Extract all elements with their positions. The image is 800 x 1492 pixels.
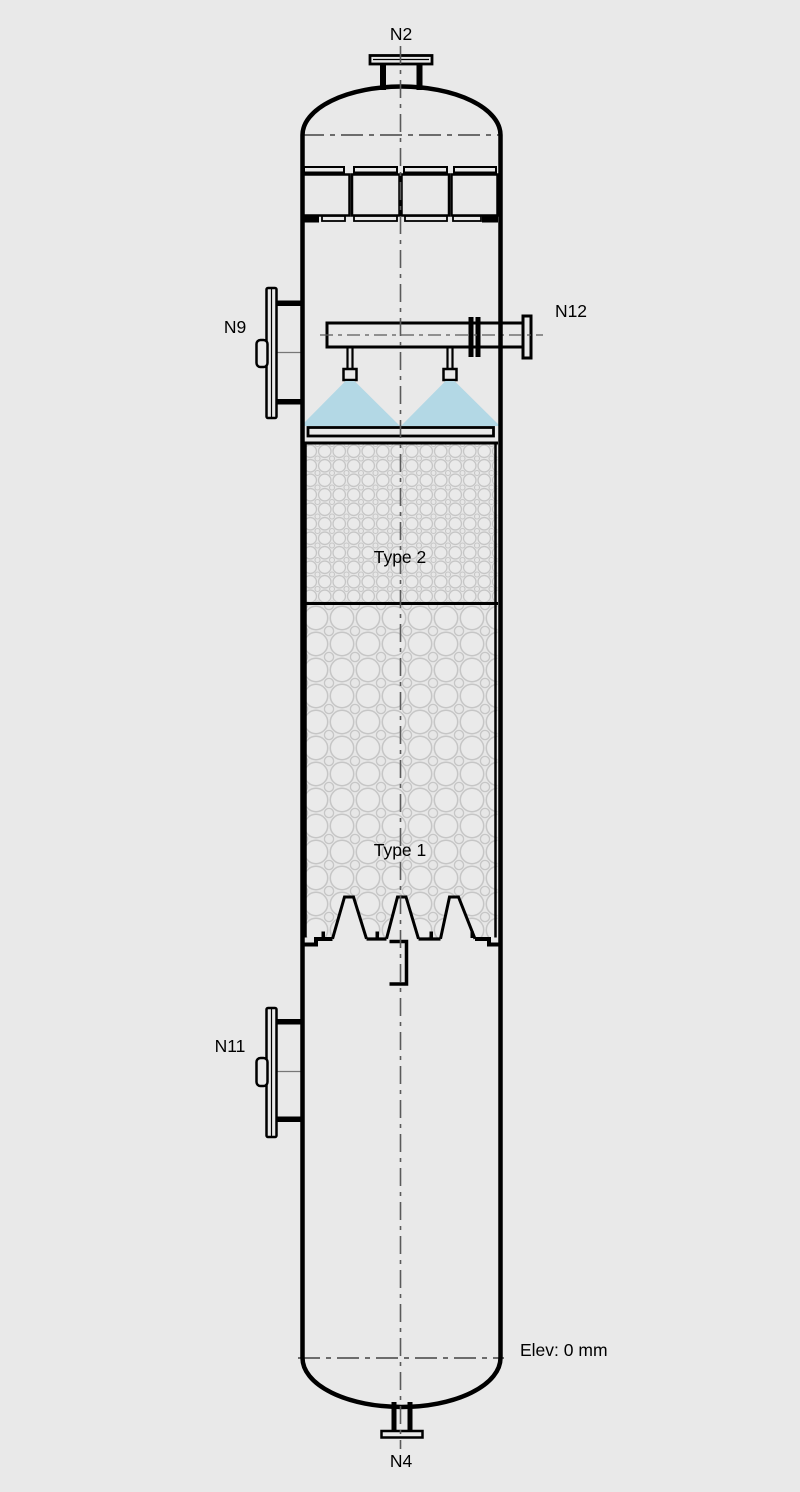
nozzle-n12-label: N12 <box>555 301 587 321</box>
demister-support-clip <box>303 216 319 223</box>
demister-top-strip <box>454 167 496 173</box>
nozzle-n4-neck <box>408 1402 413 1432</box>
nozzle-n2-neck <box>380 62 386 90</box>
support-plate-tab <box>430 932 434 939</box>
spray-nozzle-tip <box>444 369 457 380</box>
nozzle-n4-flange <box>382 1431 423 1438</box>
pipe-flange-bar <box>476 317 481 357</box>
nozzle-n12-flange <box>523 316 531 358</box>
nozzle-n9-projection <box>257 340 268 367</box>
bed-type2-label: Type 2 <box>374 547 427 567</box>
nozzle-n2-neck <box>417 62 423 90</box>
nozzle-n9-label: N9 <box>224 317 246 337</box>
demister-top-strip <box>404 167 447 173</box>
nozzle-n2-label: N2 <box>390 24 412 44</box>
spray-nozzle-tip <box>344 369 357 380</box>
nozzle-n9-neck-bottom <box>277 399 303 405</box>
demister-bottom-strip <box>405 216 447 221</box>
demister-pad <box>402 175 450 216</box>
demister-pad <box>303 175 350 216</box>
pipe-flange-bar <box>469 317 474 357</box>
support-plate-tab <box>322 932 326 939</box>
bed-type1-label: Type 1 <box>374 840 427 860</box>
nozzle-n9-neck-top <box>277 301 303 307</box>
demister-bottom-strip <box>354 216 397 221</box>
support-plate-tab <box>376 932 380 939</box>
nozzle-n4-label: N4 <box>390 1451 413 1471</box>
nozzle-n4-neck <box>392 1402 397 1432</box>
demister-pad <box>352 175 400 216</box>
demister-bottom-strip <box>322 216 345 221</box>
nozzle-n11-projection <box>257 1058 268 1086</box>
elevation-note: Elev: 0 mm <box>520 1340 608 1360</box>
demister-top-strip <box>354 167 397 173</box>
nozzle-n11-neck-bottom <box>277 1117 303 1123</box>
demister-top-strip <box>304 167 344 173</box>
vessel-elevation-drawing: N2 N9 N12 Type 2 Type 1 N11 Elev: 0 mm N… <box>0 0 800 1492</box>
support-plate-tab <box>471 932 475 939</box>
nozzle-n11-label: N11 <box>215 1036 246 1056</box>
demister-bottom-strip <box>453 216 481 221</box>
demister-pad <box>452 175 498 216</box>
nozzle-n11-neck-top <box>277 1019 303 1025</box>
demister-support-clip <box>482 216 498 223</box>
